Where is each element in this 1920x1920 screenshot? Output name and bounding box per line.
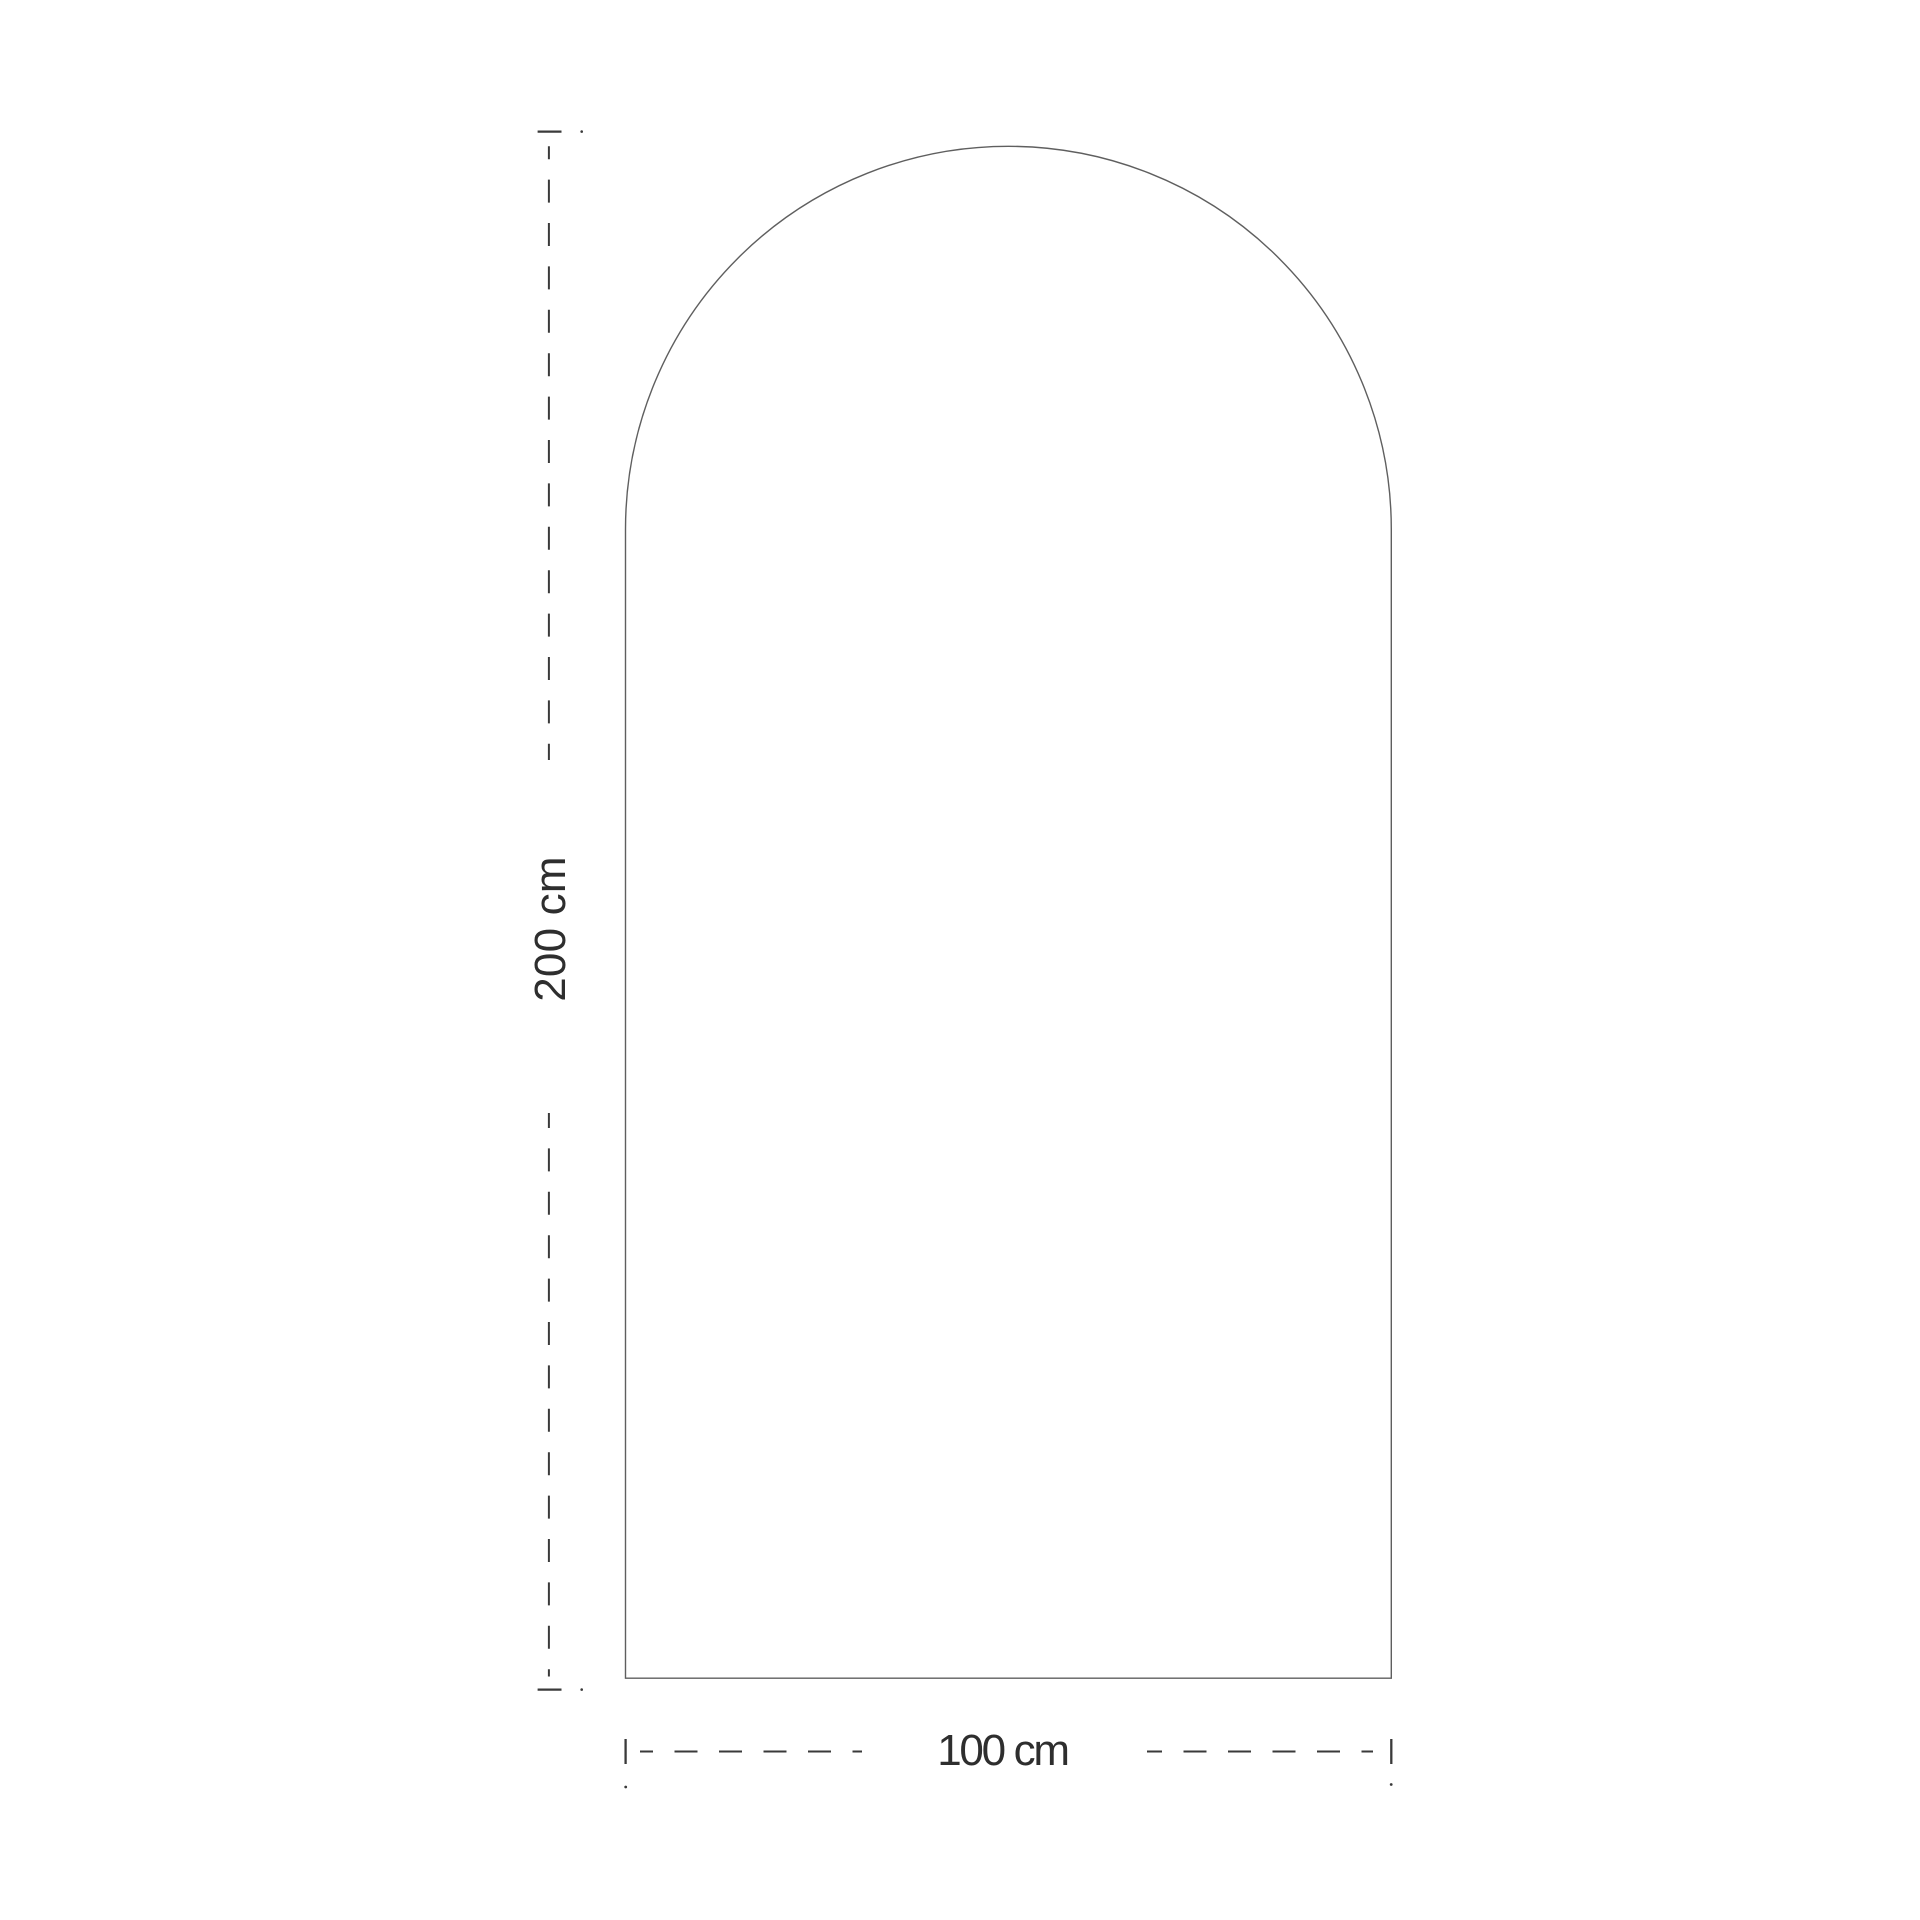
svg-text:200 cm: 200 cm	[526, 856, 575, 1002]
svg-text:100 cm: 100 cm	[937, 1726, 1068, 1775]
